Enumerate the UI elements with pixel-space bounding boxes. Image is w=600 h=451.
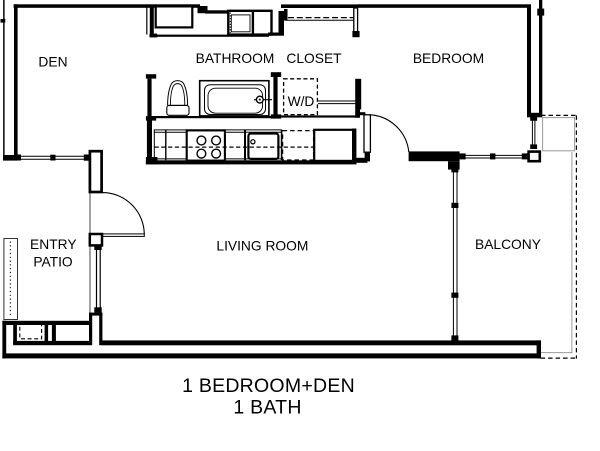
svg-text:BALCONY: BALCONY xyxy=(475,237,541,252)
svg-text:BATHROOM: BATHROOM xyxy=(196,51,275,66)
svg-text:BEDROOM: BEDROOM xyxy=(413,51,484,66)
svg-text:PATIO: PATIO xyxy=(33,254,73,269)
svg-text:W/D: W/D xyxy=(288,94,315,109)
svg-text:ENTRY: ENTRY xyxy=(30,237,77,252)
svg-text:1 BATH: 1 BATH xyxy=(233,396,301,418)
svg-text:LIVING ROOM: LIVING ROOM xyxy=(216,238,308,253)
svg-text:1 BEDROOM+DEN: 1 BEDROOM+DEN xyxy=(182,375,355,397)
svg-text:CLOSET: CLOSET xyxy=(286,51,342,66)
svg-text:DEN: DEN xyxy=(38,55,67,70)
